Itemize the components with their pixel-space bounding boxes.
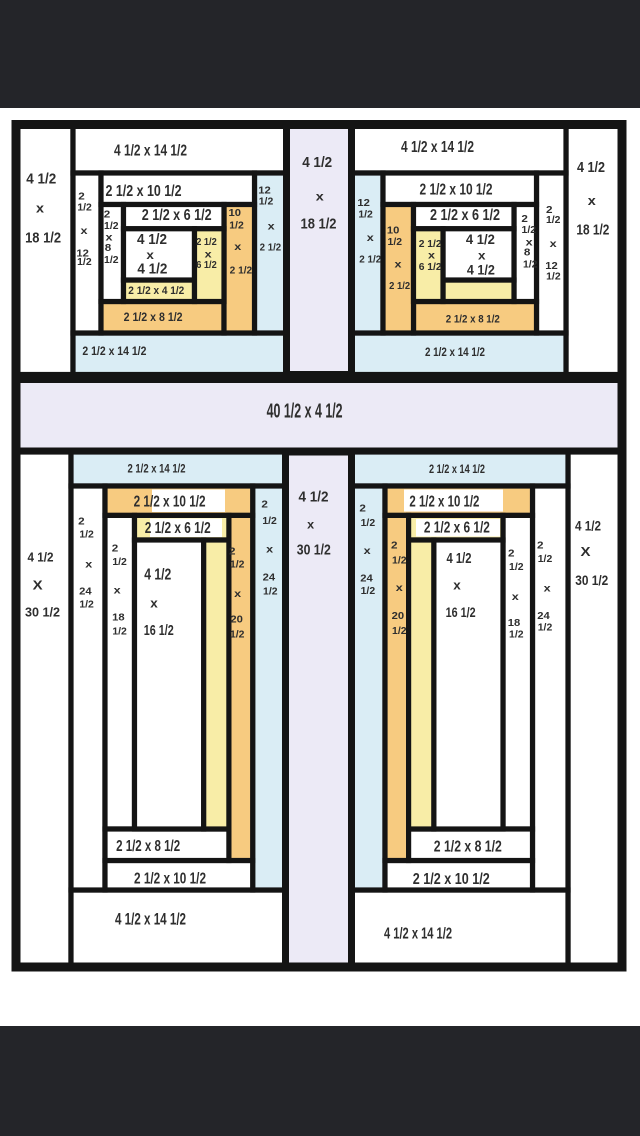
svg-text:4 1/2: 4 1/2 <box>466 231 495 247</box>
svg-text:20: 20 <box>230 614 243 626</box>
svg-text:2 1/2 x 10 1/2: 2 1/2 x 10 1/2 <box>420 182 493 199</box>
svg-text:18 1/2: 18 1/2 <box>301 217 337 233</box>
svg-text:6 1/2: 6 1/2 <box>196 259 217 271</box>
svg-text:x: x <box>234 242 242 253</box>
svg-text:x: x <box>453 579 461 593</box>
svg-text:24: 24 <box>537 610 550 622</box>
svg-text:1/2: 1/2 <box>79 599 94 611</box>
svg-text:4 1/2: 4 1/2 <box>137 262 167 278</box>
svg-text:x: x <box>150 595 158 610</box>
svg-text:1/2: 1/2 <box>509 629 524 641</box>
svg-text:2 1/2 x 10 1/2: 2 1/2 x 10 1/2 <box>409 494 479 511</box>
svg-text:2: 2 <box>78 515 85 527</box>
svg-text:18 1/2: 18 1/2 <box>576 223 609 239</box>
svg-text:18: 18 <box>508 617 521 629</box>
svg-text:1/2: 1/2 <box>77 256 92 268</box>
svg-text:30 1/2: 30 1/2 <box>297 543 331 559</box>
svg-text:1/2: 1/2 <box>230 559 245 571</box>
svg-text:2 1/2 x 6 1/2: 2 1/2 x 6 1/2 <box>145 520 211 537</box>
svg-text:24: 24 <box>263 571 276 583</box>
svg-text:10: 10 <box>387 224 400 236</box>
svg-text:18 1/2: 18 1/2 <box>25 231 61 247</box>
svg-text:2 1/2 x 8 1/2: 2 1/2 x 8 1/2 <box>116 838 180 855</box>
svg-text:X: X <box>581 544 591 559</box>
svg-text:4 1/2: 4 1/2 <box>302 155 332 171</box>
svg-text:4 1/2: 4 1/2 <box>26 170 56 187</box>
svg-text:1/2: 1/2 <box>263 586 278 598</box>
svg-text:2: 2 <box>261 499 268 511</box>
svg-text:2: 2 <box>104 209 111 221</box>
svg-text:4 1/2: 4 1/2 <box>299 490 329 506</box>
svg-text:x: x <box>396 583 404 594</box>
svg-text:x: x <box>234 589 242 600</box>
svg-text:x: x <box>588 194 596 208</box>
svg-text:1/2: 1/2 <box>522 224 537 236</box>
svg-text:2: 2 <box>112 543 119 555</box>
svg-text:4 1/2 x 14 1/2: 4 1/2 x 14 1/2 <box>114 142 187 159</box>
svg-text:2 1/2 x 10 1/2: 2 1/2 x 10 1/2 <box>106 183 182 200</box>
svg-text:2 1/2: 2 1/2 <box>260 241 282 253</box>
svg-text:4 1/2: 4 1/2 <box>144 566 171 583</box>
svg-text:10: 10 <box>229 207 242 219</box>
svg-text:1/2: 1/2 <box>538 622 553 634</box>
svg-text:24: 24 <box>79 585 92 597</box>
svg-text:2 1/2 x 4 1/2: 2 1/2 x 4 1/2 <box>128 285 184 297</box>
svg-text:2 1/2 x 6 1/2: 2 1/2 x 6 1/2 <box>430 207 500 224</box>
svg-text:2 1/2 x 6 1/2: 2 1/2 x 6 1/2 <box>142 207 212 224</box>
svg-text:1/2: 1/2 <box>230 628 245 640</box>
svg-text:x: x <box>307 517 314 531</box>
svg-text:x: x <box>146 248 154 262</box>
svg-text:x: x <box>512 592 520 603</box>
svg-text:1/2: 1/2 <box>523 259 538 271</box>
svg-text:x: x <box>544 584 552 595</box>
svg-text:6 1/2: 6 1/2 <box>419 261 442 273</box>
svg-text:x: x <box>36 202 44 216</box>
svg-text:1/2: 1/2 <box>361 585 376 597</box>
svg-text:4 1/2: 4 1/2 <box>447 550 472 567</box>
svg-text:1/2: 1/2 <box>104 220 119 232</box>
svg-text:30 1/2: 30 1/2 <box>575 573 608 588</box>
svg-text:2 1/2 x 10 1/2: 2 1/2 x 10 1/2 <box>134 871 206 888</box>
svg-text:8: 8 <box>524 247 531 259</box>
svg-text:16 1/2: 16 1/2 <box>144 623 174 639</box>
svg-text:1/2: 1/2 <box>79 528 94 540</box>
svg-text:x: x <box>85 559 93 570</box>
svg-text:1/2: 1/2 <box>259 195 274 207</box>
svg-text:1/2: 1/2 <box>392 625 407 637</box>
svg-text:x: x <box>367 233 375 244</box>
svg-text:2 1/2 x 14 1/2: 2 1/2 x 14 1/2 <box>429 464 485 476</box>
svg-text:1/2: 1/2 <box>392 554 407 566</box>
svg-text:2 1/2 x 14 1/2: 2 1/2 x 14 1/2 <box>128 464 186 476</box>
svg-text:30 1/2: 30 1/2 <box>25 605 60 619</box>
svg-text:2 1/2 x 14 1/2: 2 1/2 x 14 1/2 <box>82 346 146 358</box>
svg-text:1/2: 1/2 <box>546 214 561 226</box>
svg-text:1/2: 1/2 <box>112 556 127 568</box>
svg-text:2 1/2: 2 1/2 <box>389 280 410 292</box>
svg-text:2: 2 <box>229 546 236 558</box>
svg-text:2 1/2 x 8 1/2: 2 1/2 x 8 1/2 <box>124 310 183 324</box>
svg-text:1/2: 1/2 <box>388 236 403 248</box>
svg-text:4 1/2: 4 1/2 <box>577 159 605 176</box>
svg-text:4 1/2: 4 1/2 <box>575 519 601 534</box>
svg-text:x: x <box>364 546 372 557</box>
svg-text:2: 2 <box>508 548 515 560</box>
svg-text:2 1/2 x 6 1/2: 2 1/2 x 6 1/2 <box>424 519 490 536</box>
svg-text:18: 18 <box>112 612 125 624</box>
svg-text:x: x <box>268 221 276 232</box>
svg-text:2 1/2: 2 1/2 <box>359 254 381 266</box>
svg-text:1/2: 1/2 <box>229 220 244 232</box>
svg-text:x: x <box>266 545 274 556</box>
svg-text:1/2: 1/2 <box>112 626 127 638</box>
svg-text:8: 8 <box>105 242 112 254</box>
svg-text:2 1/2: 2 1/2 <box>230 264 253 276</box>
svg-text:1/2: 1/2 <box>77 202 92 214</box>
svg-text:2 1/2 x 8 1/2: 2 1/2 x 8 1/2 <box>434 838 502 855</box>
svg-text:x: x <box>550 239 558 250</box>
svg-text:1/2: 1/2 <box>262 515 277 527</box>
svg-text:2 1/2 x 10 1/2: 2 1/2 x 10 1/2 <box>413 871 490 888</box>
svg-text:4 1/2: 4 1/2 <box>28 550 54 565</box>
svg-text:12: 12 <box>357 197 370 209</box>
svg-text:1/2: 1/2 <box>538 553 553 565</box>
svg-text:2 1/2: 2 1/2 <box>419 238 442 250</box>
svg-text:2 1/2 x 14 1/2: 2 1/2 x 14 1/2 <box>425 347 485 359</box>
svg-text:2: 2 <box>391 540 398 552</box>
svg-text:4 1/2 x 14 1/2: 4 1/2 x 14 1/2 <box>401 139 474 156</box>
svg-text:4 1/2 x 14 1/2: 4 1/2 x 14 1/2 <box>115 911 186 929</box>
svg-text:1/2: 1/2 <box>546 271 561 283</box>
svg-text:4 1/2: 4 1/2 <box>137 231 167 248</box>
svg-text:4 1/2: 4 1/2 <box>467 262 495 277</box>
svg-text:16 1/2: 16 1/2 <box>446 604 476 620</box>
svg-text:2 1/2 x 10 1/2: 2 1/2 x 10 1/2 <box>134 494 206 511</box>
svg-text:x: x <box>428 251 436 262</box>
svg-text:4 1/2 x 14 1/2: 4 1/2 x 14 1/2 <box>384 926 452 943</box>
svg-text:20: 20 <box>392 610 405 622</box>
svg-text:2 1/2 x 8 1/2: 2 1/2 x 8 1/2 <box>446 313 500 325</box>
svg-text:x: x <box>114 586 122 597</box>
svg-text:2: 2 <box>537 539 544 551</box>
svg-text:x: x <box>395 260 403 271</box>
svg-text:x: x <box>478 249 486 263</box>
svg-text:1/2: 1/2 <box>509 561 524 573</box>
svg-text:X: X <box>33 578 43 593</box>
svg-text:1/2: 1/2 <box>104 254 119 266</box>
svg-text:x: x <box>316 189 324 203</box>
svg-text:24: 24 <box>360 573 373 585</box>
svg-text:2: 2 <box>359 503 366 515</box>
svg-text:1/2: 1/2 <box>358 209 373 221</box>
svg-text:2 1/2: 2 1/2 <box>196 236 217 248</box>
svg-text:1/2: 1/2 <box>361 517 376 529</box>
svg-text:40 1/2 x 4 1/2: 40 1/2 x 4 1/2 <box>267 400 343 422</box>
svg-text:x: x <box>81 226 89 237</box>
